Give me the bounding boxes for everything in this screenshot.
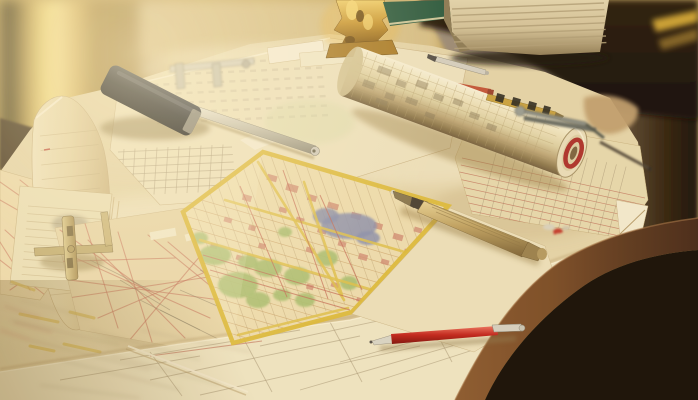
light-overlay bbox=[0, 0, 698, 400]
desk-photo bbox=[0, 0, 698, 400]
desk-scene bbox=[0, 0, 698, 400]
warm-cast bbox=[0, 0, 698, 400]
